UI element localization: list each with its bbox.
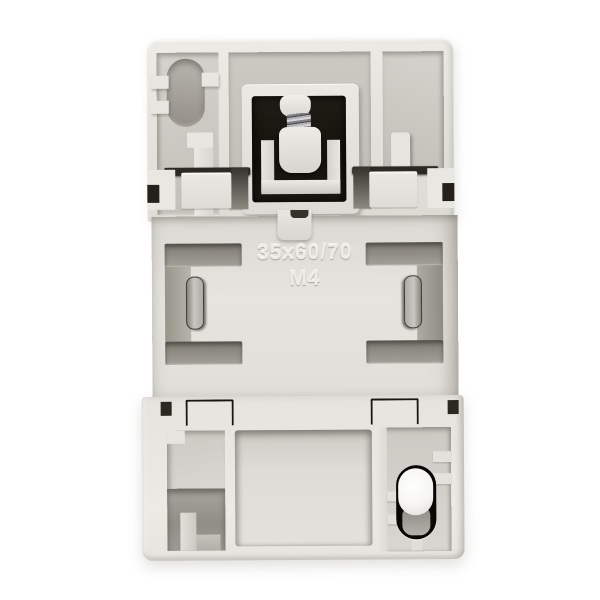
- clip-slider-post: [279, 127, 321, 173]
- rail-slot-bottom-left: [165, 341, 242, 364]
- shoulder-gap-right: [353, 167, 370, 209]
- pin-head: [398, 468, 433, 515]
- rail-slot-top-right: [366, 242, 443, 265]
- shoulder-tab-left: [181, 172, 231, 208]
- vertical-rib-bottom-right: [375, 427, 388, 551]
- rib: [433, 451, 451, 462]
- product-photo-canvas: 35x60/70 M4: [0, 0, 600, 600]
- pocket-center: [235, 430, 373, 547]
- shoulder-gap-left: [231, 167, 248, 209]
- rib-cap: [187, 133, 213, 148]
- bottom-tab-right: [371, 398, 419, 424]
- pocket-post: [180, 513, 196, 551]
- rib: [202, 72, 219, 86]
- rail-slot-top-left: [165, 243, 242, 266]
- shoulder-tab-right: [369, 171, 417, 207]
- clip-slider-base: [261, 180, 340, 194]
- oblong-slot: [167, 59, 205, 127]
- rail-slot-bottom-right: [366, 340, 443, 363]
- edge-notch-right: [442, 183, 454, 201]
- groove-tab-right: [404, 275, 422, 328]
- edge-notch-left: [147, 185, 159, 203]
- bottom-tab-left: [186, 399, 234, 425]
- rib: [151, 76, 169, 89]
- edge-nub-left: [161, 402, 172, 416]
- edge-nub-right: [448, 400, 459, 414]
- clip-release-notch: [290, 210, 308, 218]
- rib: [151, 101, 169, 114]
- device-housing-back: 35x60/70 M4: [0, 0, 600, 600]
- mounting-hole: [396, 465, 436, 539]
- groove-tab-left: [186, 277, 204, 330]
- pocket-left-notch: [167, 431, 185, 444]
